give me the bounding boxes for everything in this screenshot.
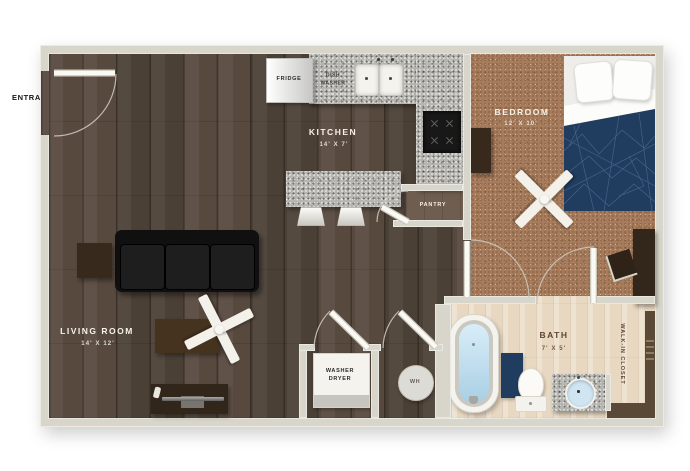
vanity-sink [565,378,596,409]
hanger-mark [646,346,654,348]
living-room-label: LIVING ROOM [60,327,134,336]
sink-faucet [377,58,380,61]
washer-dryer-base [314,395,369,407]
closet-shelf-right [645,311,655,418]
wall [594,296,655,304]
wall [401,184,463,191]
tub-faucet [469,396,478,404]
washer-dryer-label: WASHER DRYER [326,367,354,384]
kitchen-sink-basin [355,64,379,96]
kitchen-dims: 14' X 7' [319,142,348,148]
pillow [573,60,615,104]
wall [363,344,381,351]
hanger-mark [646,352,654,354]
floor-plan-page: ENTRANCE FRIDGE DISH WASHER [0,0,690,471]
stove [423,111,461,153]
pillow [612,59,654,102]
bath-door-threshold [536,296,594,304]
walk-in-closet-label: WALK-IN CLOSET [619,323,625,384]
bath-label: BATH [540,331,569,340]
bedroom-dims: 12' X 10' [504,121,537,127]
tub-water [459,324,489,403]
dresser [471,128,491,173]
dishwasher-label: DISH WASHER [321,73,346,88]
vanity-drain [577,390,580,393]
tub-drain [472,343,475,346]
sofa-cushion [120,244,165,290]
sink-drain [365,77,368,80]
stove-burner [428,117,441,130]
hanger-mark [646,340,654,342]
tv-screen [162,397,224,401]
ceiling-fan [506,161,582,237]
bedroom-door-threshold [463,240,471,296]
vanity-faucet [577,376,580,379]
floor-plan: FRIDGE DISH WASHER [40,45,664,427]
bar-stool [297,207,325,226]
bathroom-vanity [552,374,605,411]
stove-burner [443,134,456,147]
side-table [77,243,112,278]
wall [429,344,443,351]
water-heater-label: WH [410,379,420,385]
bar-stool [337,207,365,226]
kitchen-sink-basin [379,64,403,96]
wall [299,344,315,351]
hanger-mark [646,358,654,360]
wall [463,54,471,240]
wall [393,220,463,227]
bathtub [449,314,499,413]
living-room-dims: 14' X 12' [81,341,114,347]
wall [444,296,536,304]
sofa-cushion [210,244,255,290]
wall [435,304,451,418]
kitchen-island [286,171,401,207]
pantry-label: PANTRY [420,202,447,208]
wall [605,374,611,411]
wall [299,344,307,418]
sink-drain [389,77,392,80]
bath-dims: 7' X 5' [542,346,567,352]
desk [633,229,655,304]
sofa [115,230,259,292]
bedroom-label: BEDROOM [495,108,550,117]
entrance-threshold [41,71,49,135]
kitchen-label: KITCHEN [309,128,357,137]
fridge-label: FRIDGE [277,75,302,83]
toilet-flush-button [529,402,532,405]
fan-hub [540,195,549,204]
stove-burner [443,117,456,130]
closet-shelf-bottom [607,403,655,418]
stove-burner [428,134,441,147]
sink-faucet [391,58,394,61]
wall [371,344,379,418]
